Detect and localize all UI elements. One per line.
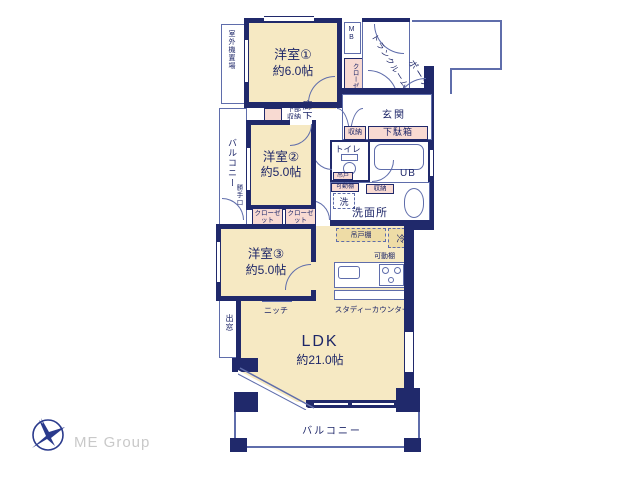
shoe-box-label: 下駄箱	[383, 128, 413, 138]
room-western1-size: 約6.0帖	[273, 64, 314, 79]
porch-edge	[500, 20, 502, 70]
balcony-rail	[234, 446, 420, 448]
balcony-bottom-label: バルコニー	[282, 422, 382, 437]
kitchen-sink-icon	[338, 266, 360, 279]
kitchen-movable-shelf-label: 可動棚	[374, 251, 395, 261]
room-western2-name: 洋室②	[263, 150, 299, 166]
window-glazing	[264, 16, 314, 22]
washroom-storage-label: 収納	[374, 185, 387, 192]
toilet-hanging-door: 吊戸	[333, 172, 353, 180]
meter-box-label: MB	[348, 26, 355, 42]
hanging-cupboard-label: 吊戸棚	[351, 230, 372, 240]
closet-western3-label: クローゼット	[288, 210, 314, 225]
room-western1-name: 洋室①	[274, 47, 312, 63]
door-opening	[311, 262, 317, 290]
room-western3-size: 約5.0帖	[246, 263, 287, 278]
window-glazing	[244, 40, 249, 82]
unit-bath-label: UB	[400, 168, 416, 179]
washroom-storage: 収納	[366, 184, 394, 194]
corner-post	[230, 438, 247, 452]
washbasin-icon	[404, 188, 424, 218]
porch-edge	[452, 68, 502, 70]
niche-label: ニッチ	[264, 305, 288, 316]
me-group-logo-icon	[24, 408, 72, 456]
hanging-cupboard: 吊戸棚	[336, 228, 386, 242]
window-glazing	[216, 242, 221, 282]
room-ldk-label: LDK 約21.0帖	[270, 332, 370, 368]
toilet-tank-icon	[341, 154, 358, 161]
balcony-left-label: バルコニー	[226, 138, 239, 188]
closet-western2-label: クローゼット	[255, 210, 281, 225]
study-counter	[334, 290, 406, 300]
washroom-label: 洗面所	[352, 204, 388, 220]
shoe-box: 下駄箱	[368, 126, 428, 140]
floor-plan: 室外機置場 バルコニー 勝手口 出窓 洋室① 約6.0帖 MB クローゼット ト…	[0, 0, 640, 480]
entrance-storage: 収納	[344, 126, 366, 140]
room-western2-size: 約5.0帖	[261, 165, 302, 180]
outdoor-unit-space-label: 室外機置場	[226, 30, 236, 70]
window-glazing	[246, 148, 251, 190]
washroom-movable-shelf-label: 可動棚	[336, 184, 354, 191]
washer-label: 洗	[339, 195, 348, 208]
stove-burner-icon	[394, 267, 401, 274]
window-glazing	[314, 402, 348, 406]
entrance-label: 玄関	[382, 106, 406, 121]
toilet-hanging-door-label: 吊戸	[337, 173, 349, 180]
washroom-movable-shelf: 可動棚	[331, 183, 359, 192]
entrance-storage-label: 収納	[348, 129, 362, 137]
porch-edge	[412, 20, 502, 22]
window-glazing	[352, 402, 394, 406]
bay-window-label: 出窓	[224, 314, 235, 332]
stove-burner-icon	[388, 277, 394, 283]
study-counter-label: スタディーカウンター	[330, 304, 414, 315]
wall-segment	[362, 18, 410, 22]
room-ldk-name: LDK	[270, 332, 370, 353]
stove-burner-icon	[382, 267, 389, 274]
logo-text: ME Group	[74, 434, 150, 451]
porch-edge	[450, 68, 452, 94]
corner-post	[404, 438, 421, 452]
corner-post	[234, 392, 258, 412]
wall-segment	[236, 298, 241, 364]
window-glazing	[404, 332, 414, 372]
wall-segment	[404, 226, 414, 404]
room-western3-name: 洋室③	[248, 247, 284, 263]
